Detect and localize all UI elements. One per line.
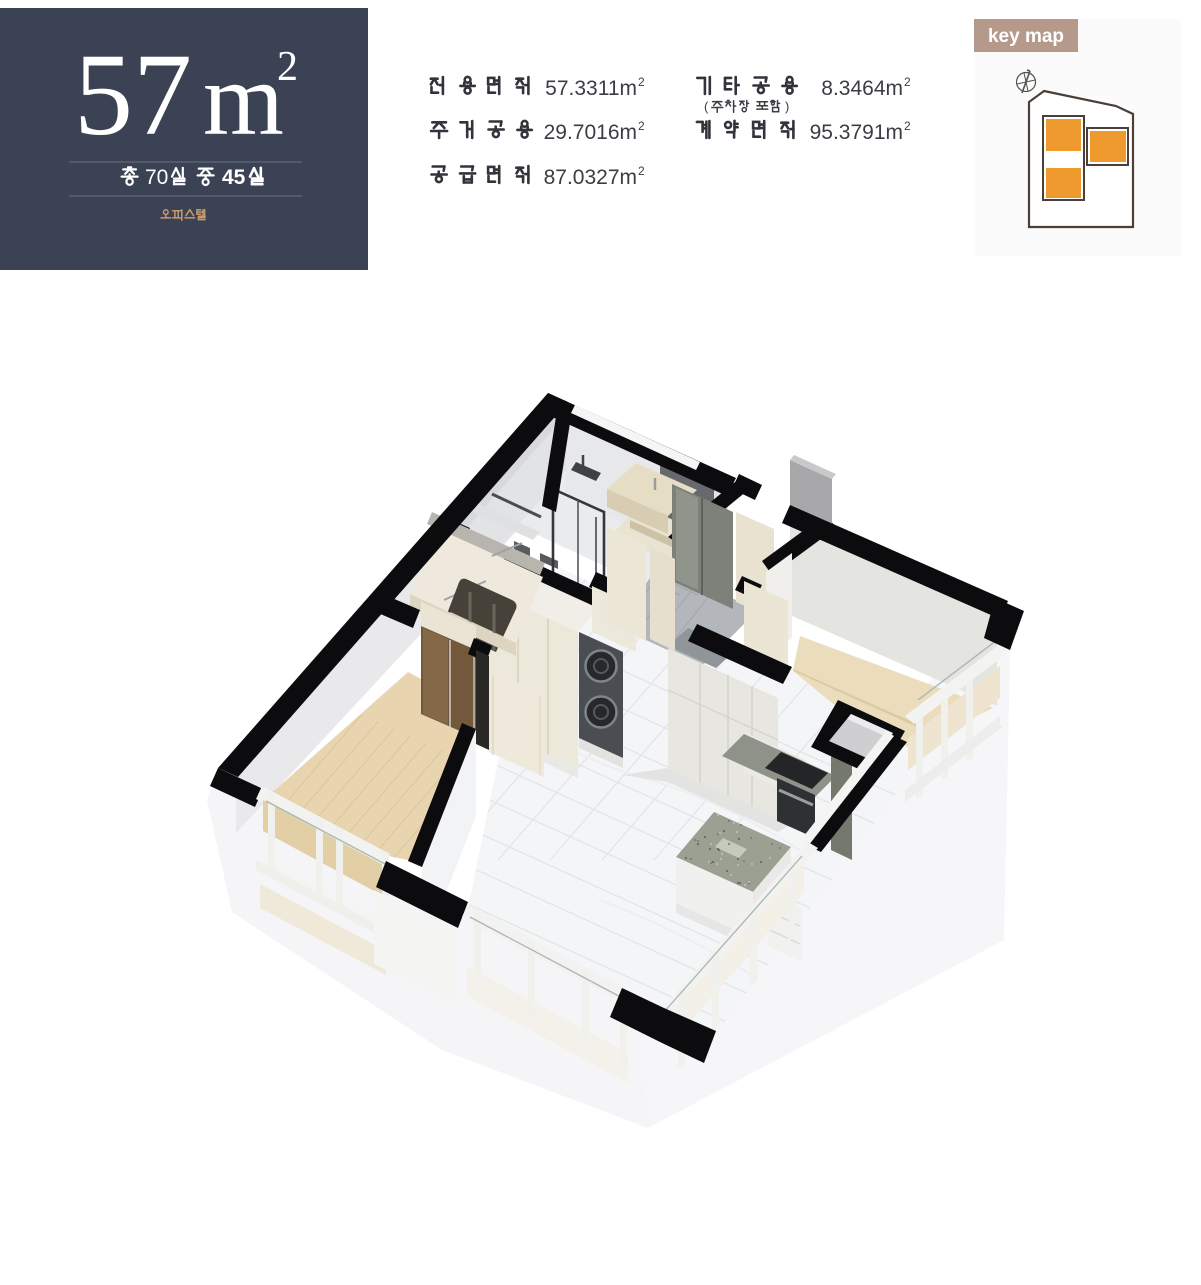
svg-text:2: 2 (638, 119, 645, 133)
svg-text:57: 57 (74, 29, 192, 160)
svg-text:2: 2 (638, 75, 645, 89)
svg-text:70: 70 (145, 166, 168, 189)
svg-text:45: 45 (222, 166, 246, 189)
svg-text:57.3311m: 57.3311m (545, 77, 637, 100)
svg-text:2: 2 (638, 164, 645, 178)
svg-text:key map: key map (988, 26, 1064, 47)
svg-text:2: 2 (277, 44, 298, 90)
svg-text:2: 2 (904, 119, 911, 133)
svg-text:29.7016m: 29.7016m (544, 121, 637, 144)
svg-text:8.3464m: 8.3464m (821, 77, 903, 100)
svg-text:95.3791m: 95.3791m (810, 121, 903, 144)
svg-text:): ) (785, 99, 789, 114)
svg-text:87.0327m: 87.0327m (544, 166, 637, 189)
svg-text:2: 2 (904, 75, 911, 89)
svg-text:(: ( (704, 99, 709, 114)
svg-text:m: m (203, 42, 284, 157)
